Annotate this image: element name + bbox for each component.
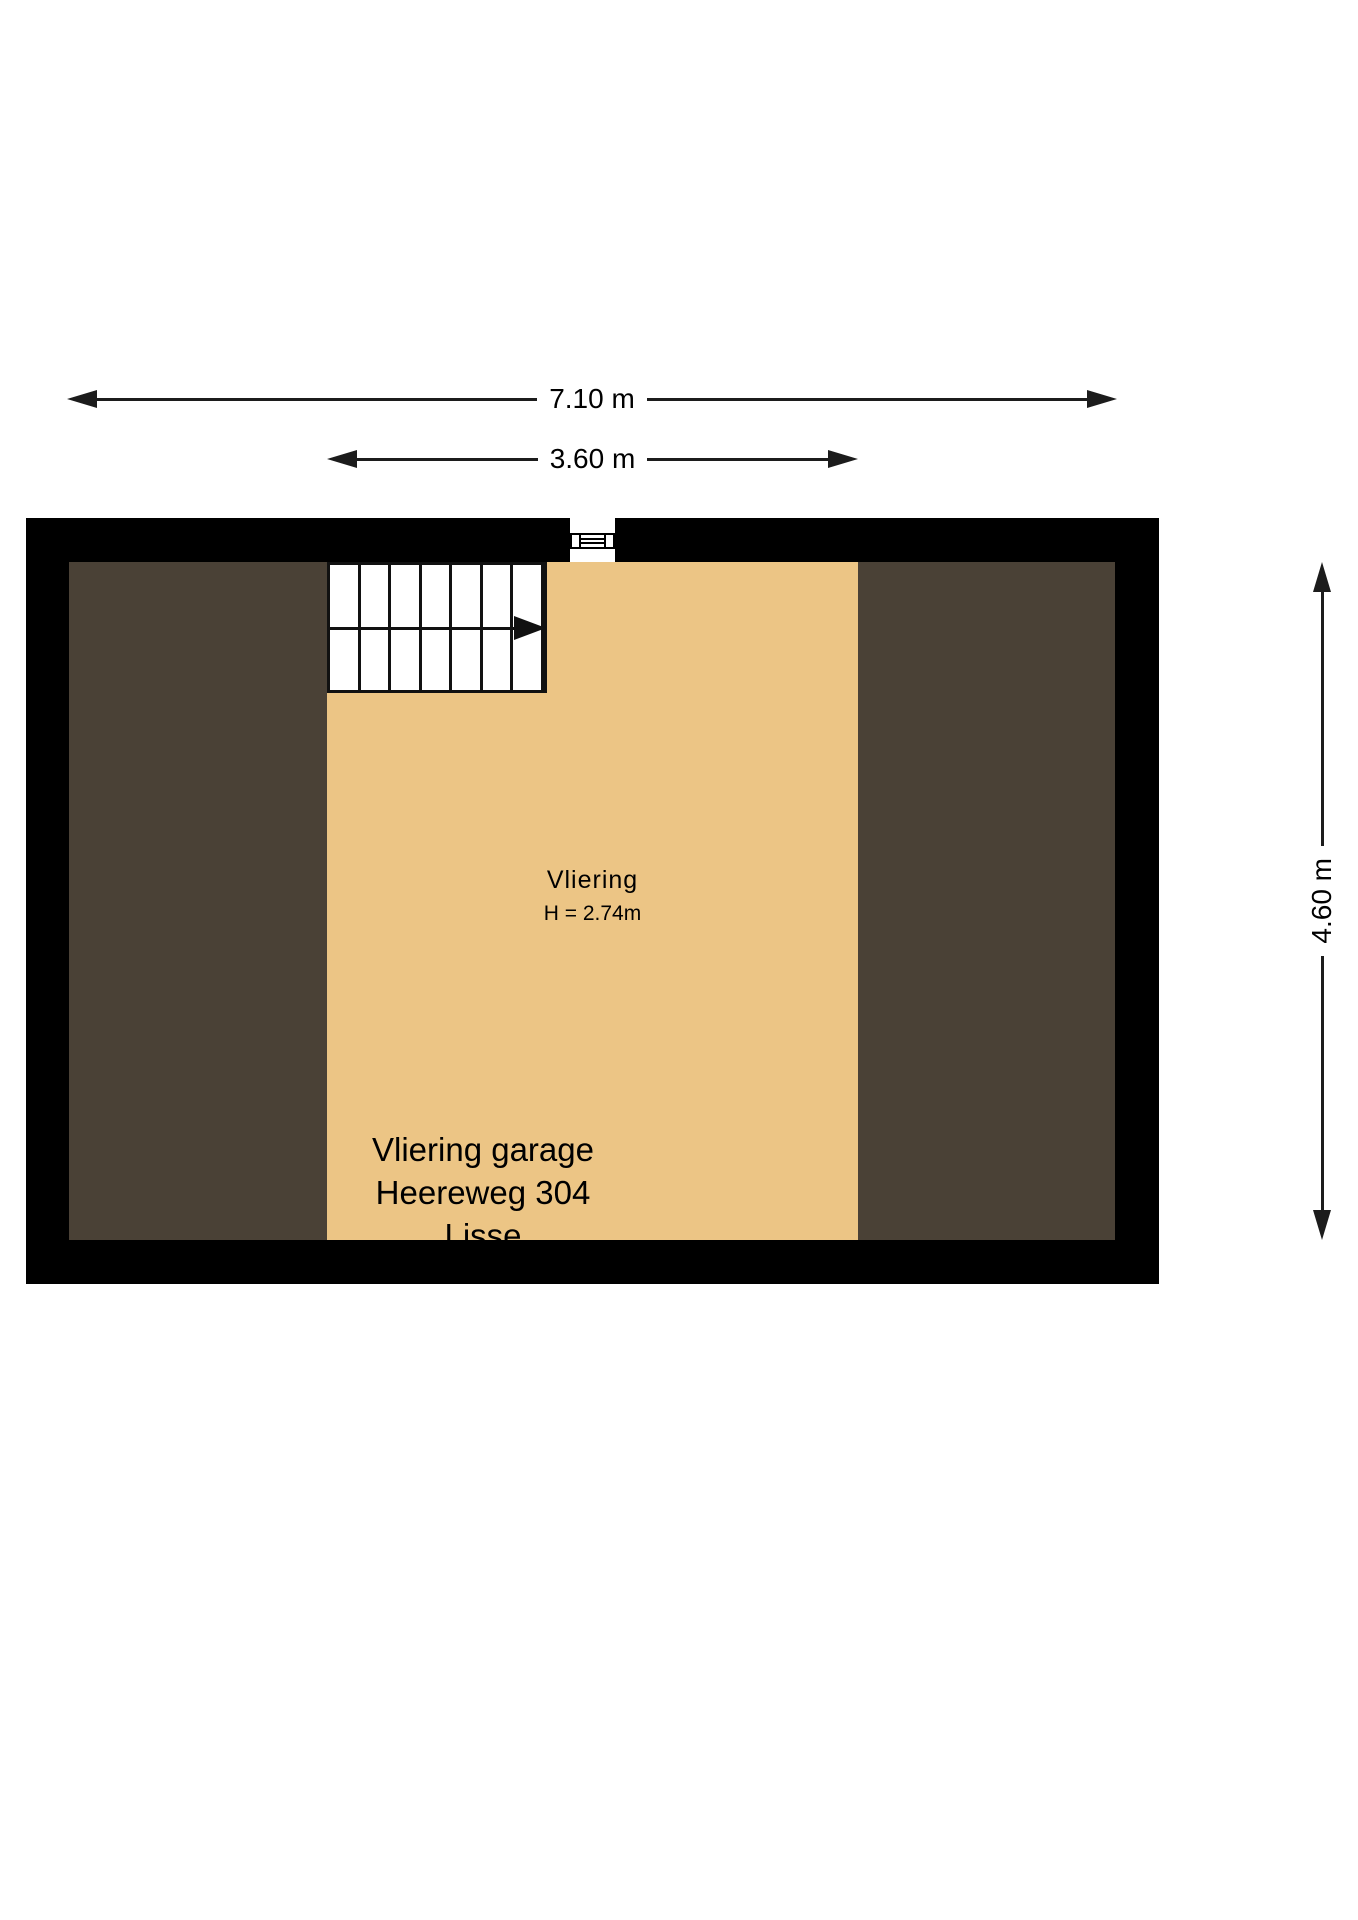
floorplan-page: 7.10 m 3.60 m Vliering H = 2.74m xyxy=(0,0,1358,1920)
dimension-line xyxy=(97,398,537,401)
dimension-total-depth: 4.60 m xyxy=(1302,562,1342,1240)
dimension-line xyxy=(1321,956,1324,1210)
arrowhead-left-icon xyxy=(67,390,97,408)
room-name-label: Vliering xyxy=(327,866,858,895)
roof-space-right-zone xyxy=(858,562,1115,1240)
arrowhead-down-icon xyxy=(1313,1210,1331,1240)
dimension-total-depth-label: 4.60 m xyxy=(1306,846,1338,956)
arrowhead-right-icon xyxy=(828,450,858,468)
plan-caption: Vliering garage Heereweg 304 Lisse xyxy=(183,1128,783,1257)
stair-direction-arrow-icon xyxy=(514,616,546,640)
arrowhead-right-icon xyxy=(1087,390,1117,408)
window-frame-left xyxy=(572,535,581,547)
dimension-attic-width-label: 3.60 m xyxy=(538,443,648,475)
arrowhead-up-icon xyxy=(1313,562,1331,592)
staircase xyxy=(327,562,547,693)
room-ceiling-height-label: H = 2.74m xyxy=(327,902,858,926)
dimension-line xyxy=(357,458,538,461)
window-glazing-line xyxy=(581,538,604,540)
window-glazing-line xyxy=(581,542,604,544)
window-glazing xyxy=(581,535,604,547)
caption-title: Vliering garage xyxy=(183,1128,783,1171)
dimension-line xyxy=(647,398,1087,401)
window-frame-right xyxy=(604,535,613,547)
caption-city: Lisse xyxy=(183,1214,783,1257)
room-label: Vliering H = 2.74m xyxy=(327,866,858,926)
window-icon xyxy=(570,533,615,549)
stair-direction-line xyxy=(330,627,520,630)
dimension-total-width: 7.10 m xyxy=(67,382,1117,416)
dimension-line xyxy=(1321,592,1324,846)
dimension-total-width-label: 7.10 m xyxy=(537,383,647,415)
dimension-attic-width: 3.60 m xyxy=(327,442,858,476)
caption-address: Heereweg 304 xyxy=(183,1171,783,1214)
dimension-line xyxy=(647,458,828,461)
arrowhead-left-icon xyxy=(327,450,357,468)
